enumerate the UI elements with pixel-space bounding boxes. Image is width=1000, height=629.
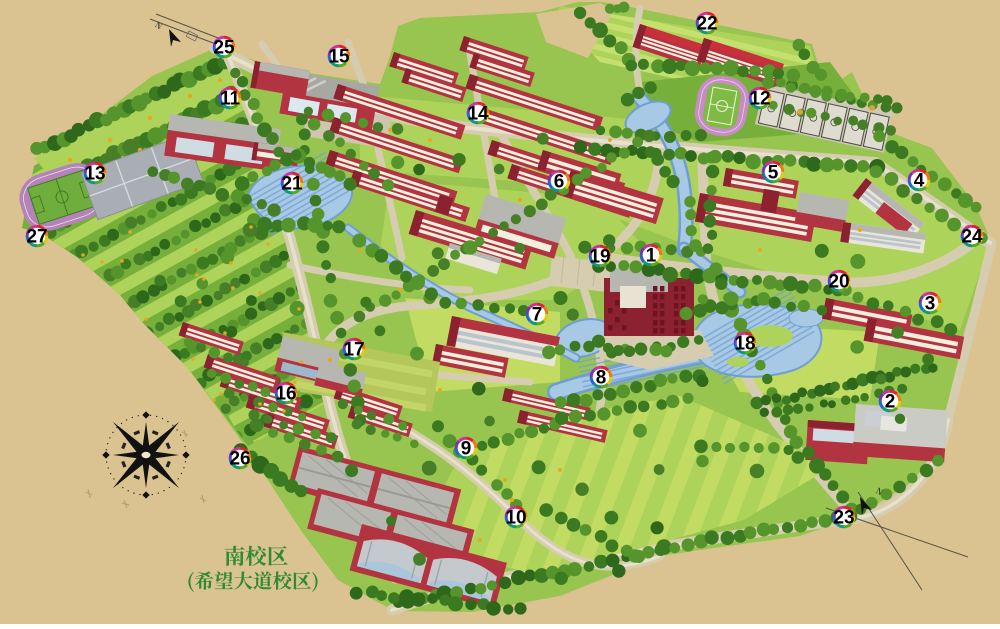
svg-text:19: 19: [589, 247, 610, 268]
svg-text:8: 8: [596, 368, 607, 389]
svg-text:18: 18: [734, 334, 755, 355]
svg-text:20: 20: [828, 272, 849, 293]
svg-text:3: 3: [925, 294, 936, 315]
svg-text:11: 11: [220, 89, 241, 110]
svg-text:12: 12: [749, 89, 770, 110]
svg-text:1: 1: [646, 246, 657, 267]
svg-text:25: 25: [213, 38, 235, 59]
svg-text:26: 26: [229, 449, 250, 470]
svg-text:6: 6: [554, 172, 565, 193]
svg-text:16: 16: [275, 384, 296, 405]
svg-text:23: 23: [833, 508, 854, 529]
svg-text:13: 13: [84, 164, 105, 185]
svg-text:4: 4: [914, 171, 925, 192]
svg-text:21: 21: [281, 174, 303, 195]
svg-text:24: 24: [961, 227, 983, 248]
svg-text:9: 9: [461, 439, 472, 460]
svg-text:27: 27: [26, 227, 47, 248]
svg-text:14: 14: [467, 104, 489, 125]
svg-text:2: 2: [885, 392, 896, 413]
svg-text:15: 15: [328, 47, 350, 68]
svg-text:5: 5: [768, 163, 779, 184]
svg-text:10: 10: [505, 508, 526, 529]
svg-text:22: 22: [696, 14, 717, 35]
svg-text:17: 17: [343, 340, 364, 361]
svg-text:7: 7: [532, 305, 543, 326]
